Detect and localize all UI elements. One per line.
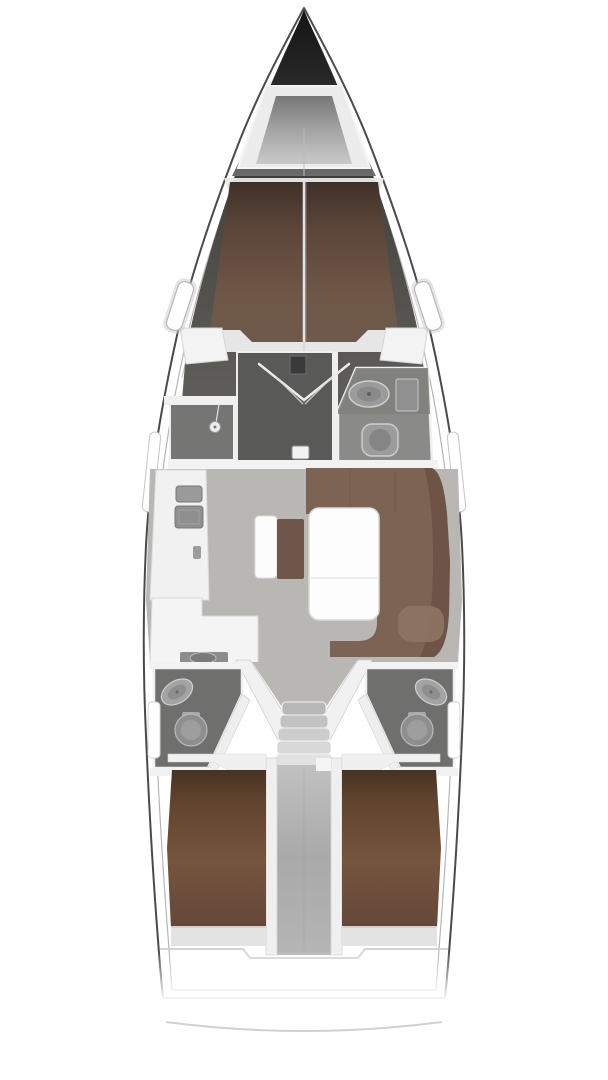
forward-head-toilet-bowl — [369, 429, 391, 451]
starboard-foot-shelf — [380, 328, 428, 364]
aft-head-port-hull-window — [148, 702, 160, 758]
dinette-table — [309, 508, 379, 620]
shower-room — [170, 404, 234, 460]
yacht-deck-plan — [0, 0, 608, 1080]
head-section-bottom-wall — [168, 460, 438, 469]
aft-cabin-port — [167, 754, 266, 946]
corridor-hatch — [316, 758, 331, 771]
saloon-stool — [277, 519, 304, 579]
aft-cabin-starboard — [342, 754, 441, 946]
saloon-door — [292, 446, 309, 459]
stove-burner-top — [176, 486, 202, 502]
forward-head-drain — [367, 392, 371, 396]
stern-fade — [110, 952, 498, 1032]
forward-head-cabinet — [396, 379, 418, 411]
port-foot-shelf — [180, 328, 228, 364]
stair-step-2 — [280, 715, 328, 728]
stair-step-4 — [277, 741, 331, 754]
aft-cabin-starboard-foot-shelf — [342, 926, 437, 946]
galley-sink — [190, 653, 216, 664]
corridor-wall-port — [266, 758, 277, 955]
aft-head-starboard-hull-window — [448, 702, 460, 758]
saloon — [146, 468, 462, 665]
aft-head-port-toilet-bowl — [181, 720, 201, 740]
wardrobe-passage — [237, 352, 333, 462]
mast-step-block — [290, 356, 306, 374]
shower-partition-wall — [233, 398, 238, 460]
corridor-wall-starboard — [331, 758, 342, 955]
sideboard-latch — [193, 546, 201, 559]
settee-chaise-cushion — [398, 606, 444, 642]
deck-plan-canvas — [0, 0, 608, 1080]
aft-cabin-port-berth — [167, 770, 266, 928]
aft-cabin-port-foot-shelf — [171, 926, 266, 946]
shower-head-dot — [214, 426, 217, 429]
aft-head-starboard-toilet-bowl — [407, 720, 427, 740]
stair-step-1 — [282, 702, 326, 715]
engine-corridor — [266, 758, 342, 955]
aft-cabin-starboard-berth — [342, 770, 441, 928]
stair-step-3 — [278, 728, 330, 741]
saloon-bench — [255, 516, 277, 578]
